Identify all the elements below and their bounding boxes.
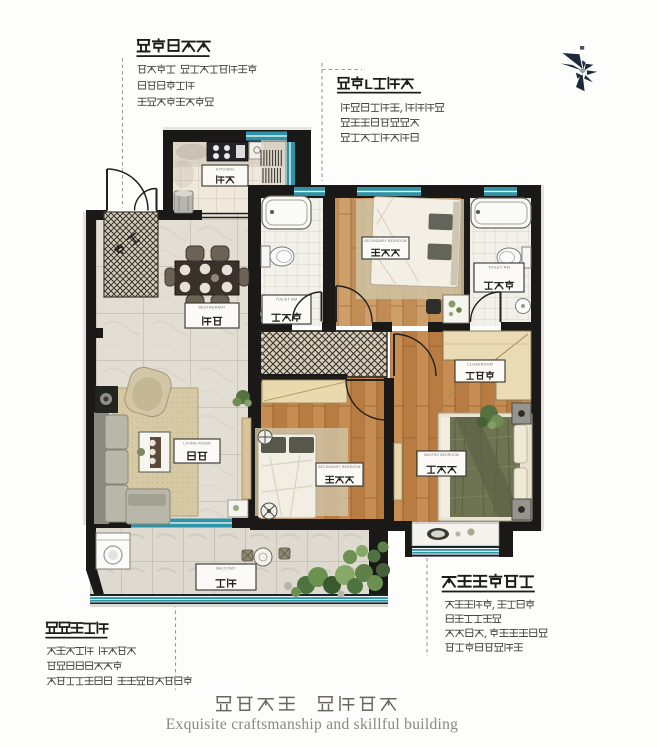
svg-text:RESTAURANT: RESTAURANT <box>198 305 226 309</box>
svg-text:Exquisite craftsmanship and sk: Exquisite craftsmanship and skillful bui… <box>166 716 458 733</box>
svg-text:CLOAKROOM: CLOAKROOM <box>467 362 493 366</box>
svg-text:MASTER BEDROOM: MASTER BEDROOM <box>424 453 459 457</box>
svg-text:LIVING ROOM: LIVING ROOM <box>183 441 210 445</box>
svg-text:TOILET RM: TOILET RM <box>488 265 510 269</box>
svg-text:TOILET RM: TOILET RM <box>276 297 298 301</box>
svg-text:BALCONY: BALCONY <box>216 566 236 570</box>
svg-text:KITCHEN: KITCHEN <box>216 167 234 171</box>
svg-text:SECONDARY BEDROOM: SECONDARY BEDROOM <box>318 465 361 469</box>
svg-text:L: L <box>364 76 373 92</box>
svg-text:SECONDARY BEDROOM: SECONDARY BEDROOM <box>364 239 407 243</box>
